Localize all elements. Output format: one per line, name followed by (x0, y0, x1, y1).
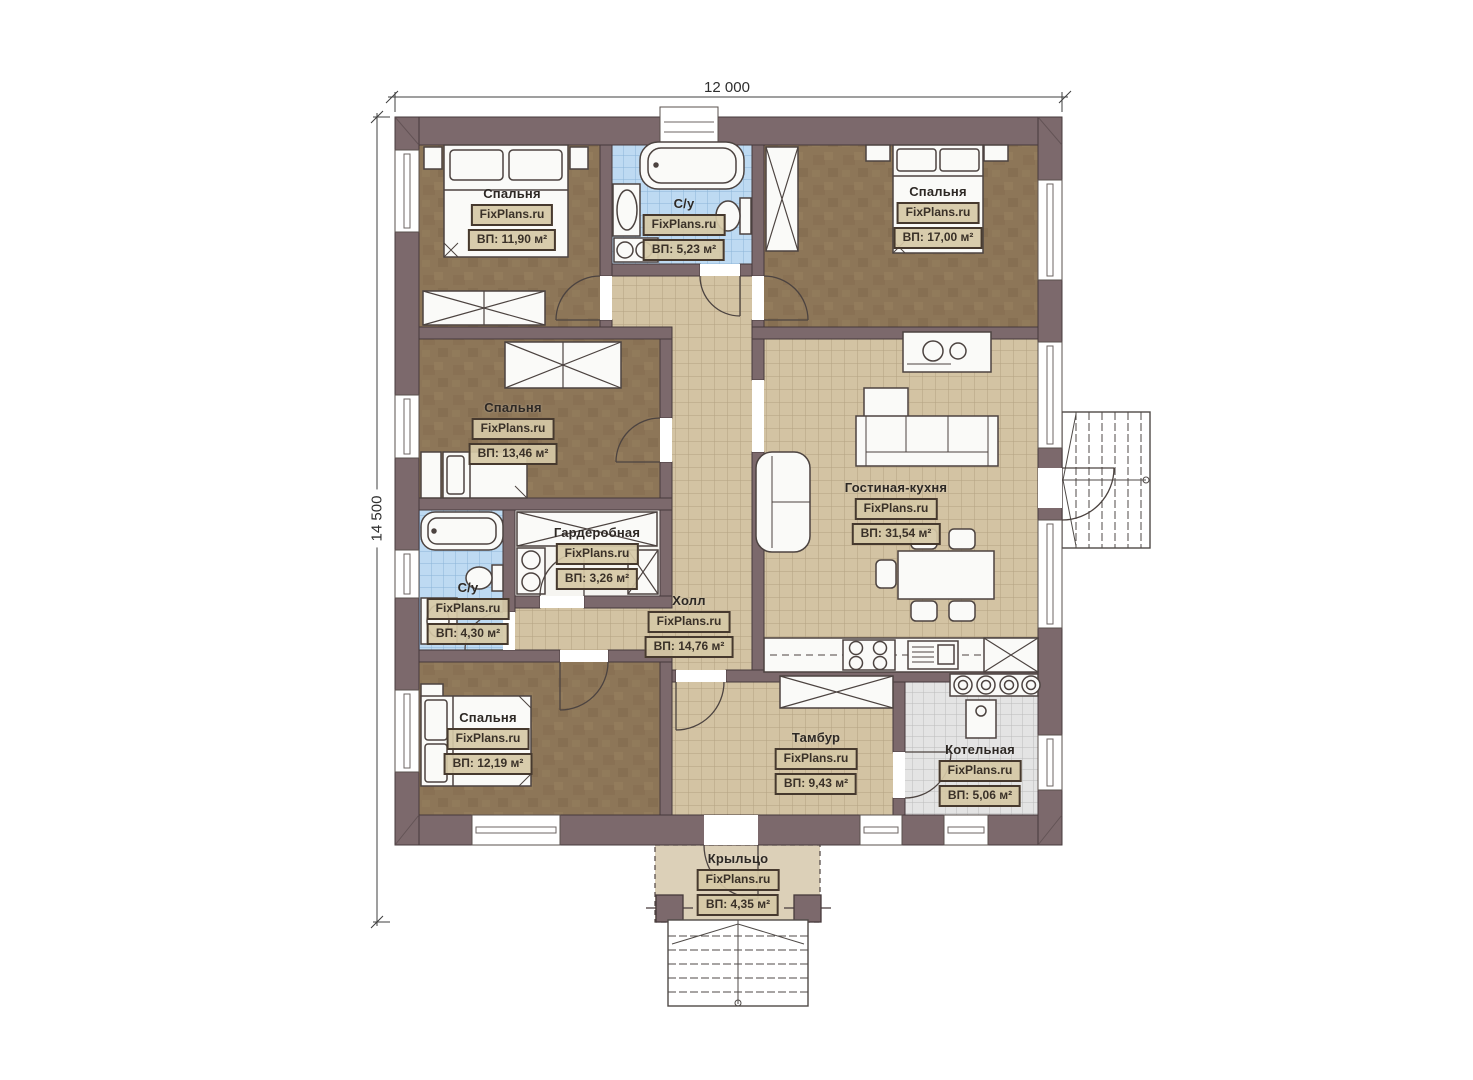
area-box: ВП: 9,43 м² (775, 773, 857, 795)
room-label-porch: Крыльцо FixPlans.ru ВП: 4,35 м² (697, 851, 780, 916)
area-box: ВП: 14,76 м² (645, 636, 734, 658)
area-box: ВП: 4,35 м² (697, 894, 779, 916)
dimension-left-label: 14 500 (368, 490, 385, 548)
area-box: ВП: 4,30 м² (427, 623, 509, 645)
room-label-wardrobe: Гардеробная FixPlans.ru ВП: 3,26 м² (554, 525, 640, 590)
armchair (756, 452, 810, 552)
area-box: ВП: 31,54 м² (852, 523, 941, 545)
room-name: С/у (427, 580, 510, 595)
room-name: Спальня (469, 400, 558, 415)
room-name: Крыльцо (697, 851, 780, 866)
brand-box: FixPlans.ru (939, 760, 1022, 782)
room-name: Тамбур (775, 730, 858, 745)
area-box: ВП: 17,00 м² (894, 227, 983, 249)
wardrobe-middle (505, 342, 621, 388)
area-box: ВП: 5,23 м² (643, 239, 725, 261)
room-name: С/у (643, 196, 726, 211)
wardrobe-top-left (423, 291, 545, 325)
room-name: Гостиная-кухня (845, 480, 947, 495)
room-name: Холл (645, 593, 734, 608)
room-label-bedroom-middle-left: Спальня FixPlans.ru ВП: 13,46 м² (469, 400, 558, 465)
brand-box: FixPlans.ru (897, 202, 980, 224)
stairs-bottom (668, 920, 808, 1006)
room-label-bedroom-top-left: Спальня FixPlans.ru ВП: 11,90 м² (468, 186, 556, 251)
area-box: ВП: 13,46 м² (469, 443, 558, 465)
wardrobe-tambour (780, 676, 893, 708)
floor-plan-page: 12 000 14 500 Спальня FixPlans.ru ВП: 11… (0, 0, 1473, 1080)
brand-box: FixPlans.ru (447, 728, 530, 750)
stairs-right (1062, 412, 1150, 548)
brand-box: FixPlans.ru (697, 869, 780, 891)
room-label-hall: Холл FixPlans.ru ВП: 14,76 м² (645, 593, 734, 658)
room-label-bedroom-top-right: Спальня FixPlans.ru ВП: 17,00 м² (894, 184, 983, 249)
brand-box: FixPlans.ru (556, 543, 639, 565)
area-box: ВП: 11,90 м² (468, 229, 556, 251)
room-name: Гардеробная (554, 525, 640, 540)
bathtub-left (421, 512, 503, 550)
brand-box: FixPlans.ru (643, 214, 726, 236)
room-label-tambour: Тамбур FixPlans.ru ВП: 9,43 м² (775, 730, 858, 795)
brand-box: FixPlans.ru (648, 611, 731, 633)
kitchen-island-sink (903, 332, 991, 372)
room-label-boiler-room: Котельная FixPlans.ru ВП: 5,06 м² (939, 742, 1022, 807)
brand-box: FixPlans.ru (471, 204, 554, 226)
area-box: ВП: 3,26 м² (556, 568, 638, 590)
area-box: ВП: 5,06 м² (939, 785, 1021, 807)
room-label-bathroom-top: С/у FixPlans.ru ВП: 5,23 м² (643, 196, 726, 261)
sink-bathroom-top (613, 184, 640, 236)
brand-box: FixPlans.ru (855, 498, 938, 520)
floor-plan-drawing (0, 0, 1473, 1080)
porch-post (656, 895, 683, 922)
bathtub-top (640, 142, 744, 189)
room-label-bedroom-bottom-left: Спальня FixPlans.ru ВП: 12,19 м² (444, 710, 533, 775)
room-name: Спальня (444, 710, 533, 725)
porch-post (794, 895, 821, 922)
area-box: ВП: 12,19 м² (444, 753, 533, 775)
room-label-living-kitchen: Гостиная-кухня FixPlans.ru ВП: 31,54 м² (845, 480, 947, 545)
dimension-top-label: 12 000 (698, 79, 756, 96)
brand-box: FixPlans.ru (472, 418, 555, 440)
brand-box: FixPlans.ru (427, 598, 510, 620)
wardrobe-top-right (766, 147, 798, 251)
room-name: Спальня (894, 184, 983, 199)
room-name: Спальня (468, 186, 556, 201)
room-label-bathroom-left: С/у FixPlans.ru ВП: 4,30 м² (427, 580, 510, 645)
brand-box: FixPlans.ru (775, 748, 858, 770)
room-name: Котельная (939, 742, 1022, 757)
kitchen-counter (764, 638, 1038, 672)
